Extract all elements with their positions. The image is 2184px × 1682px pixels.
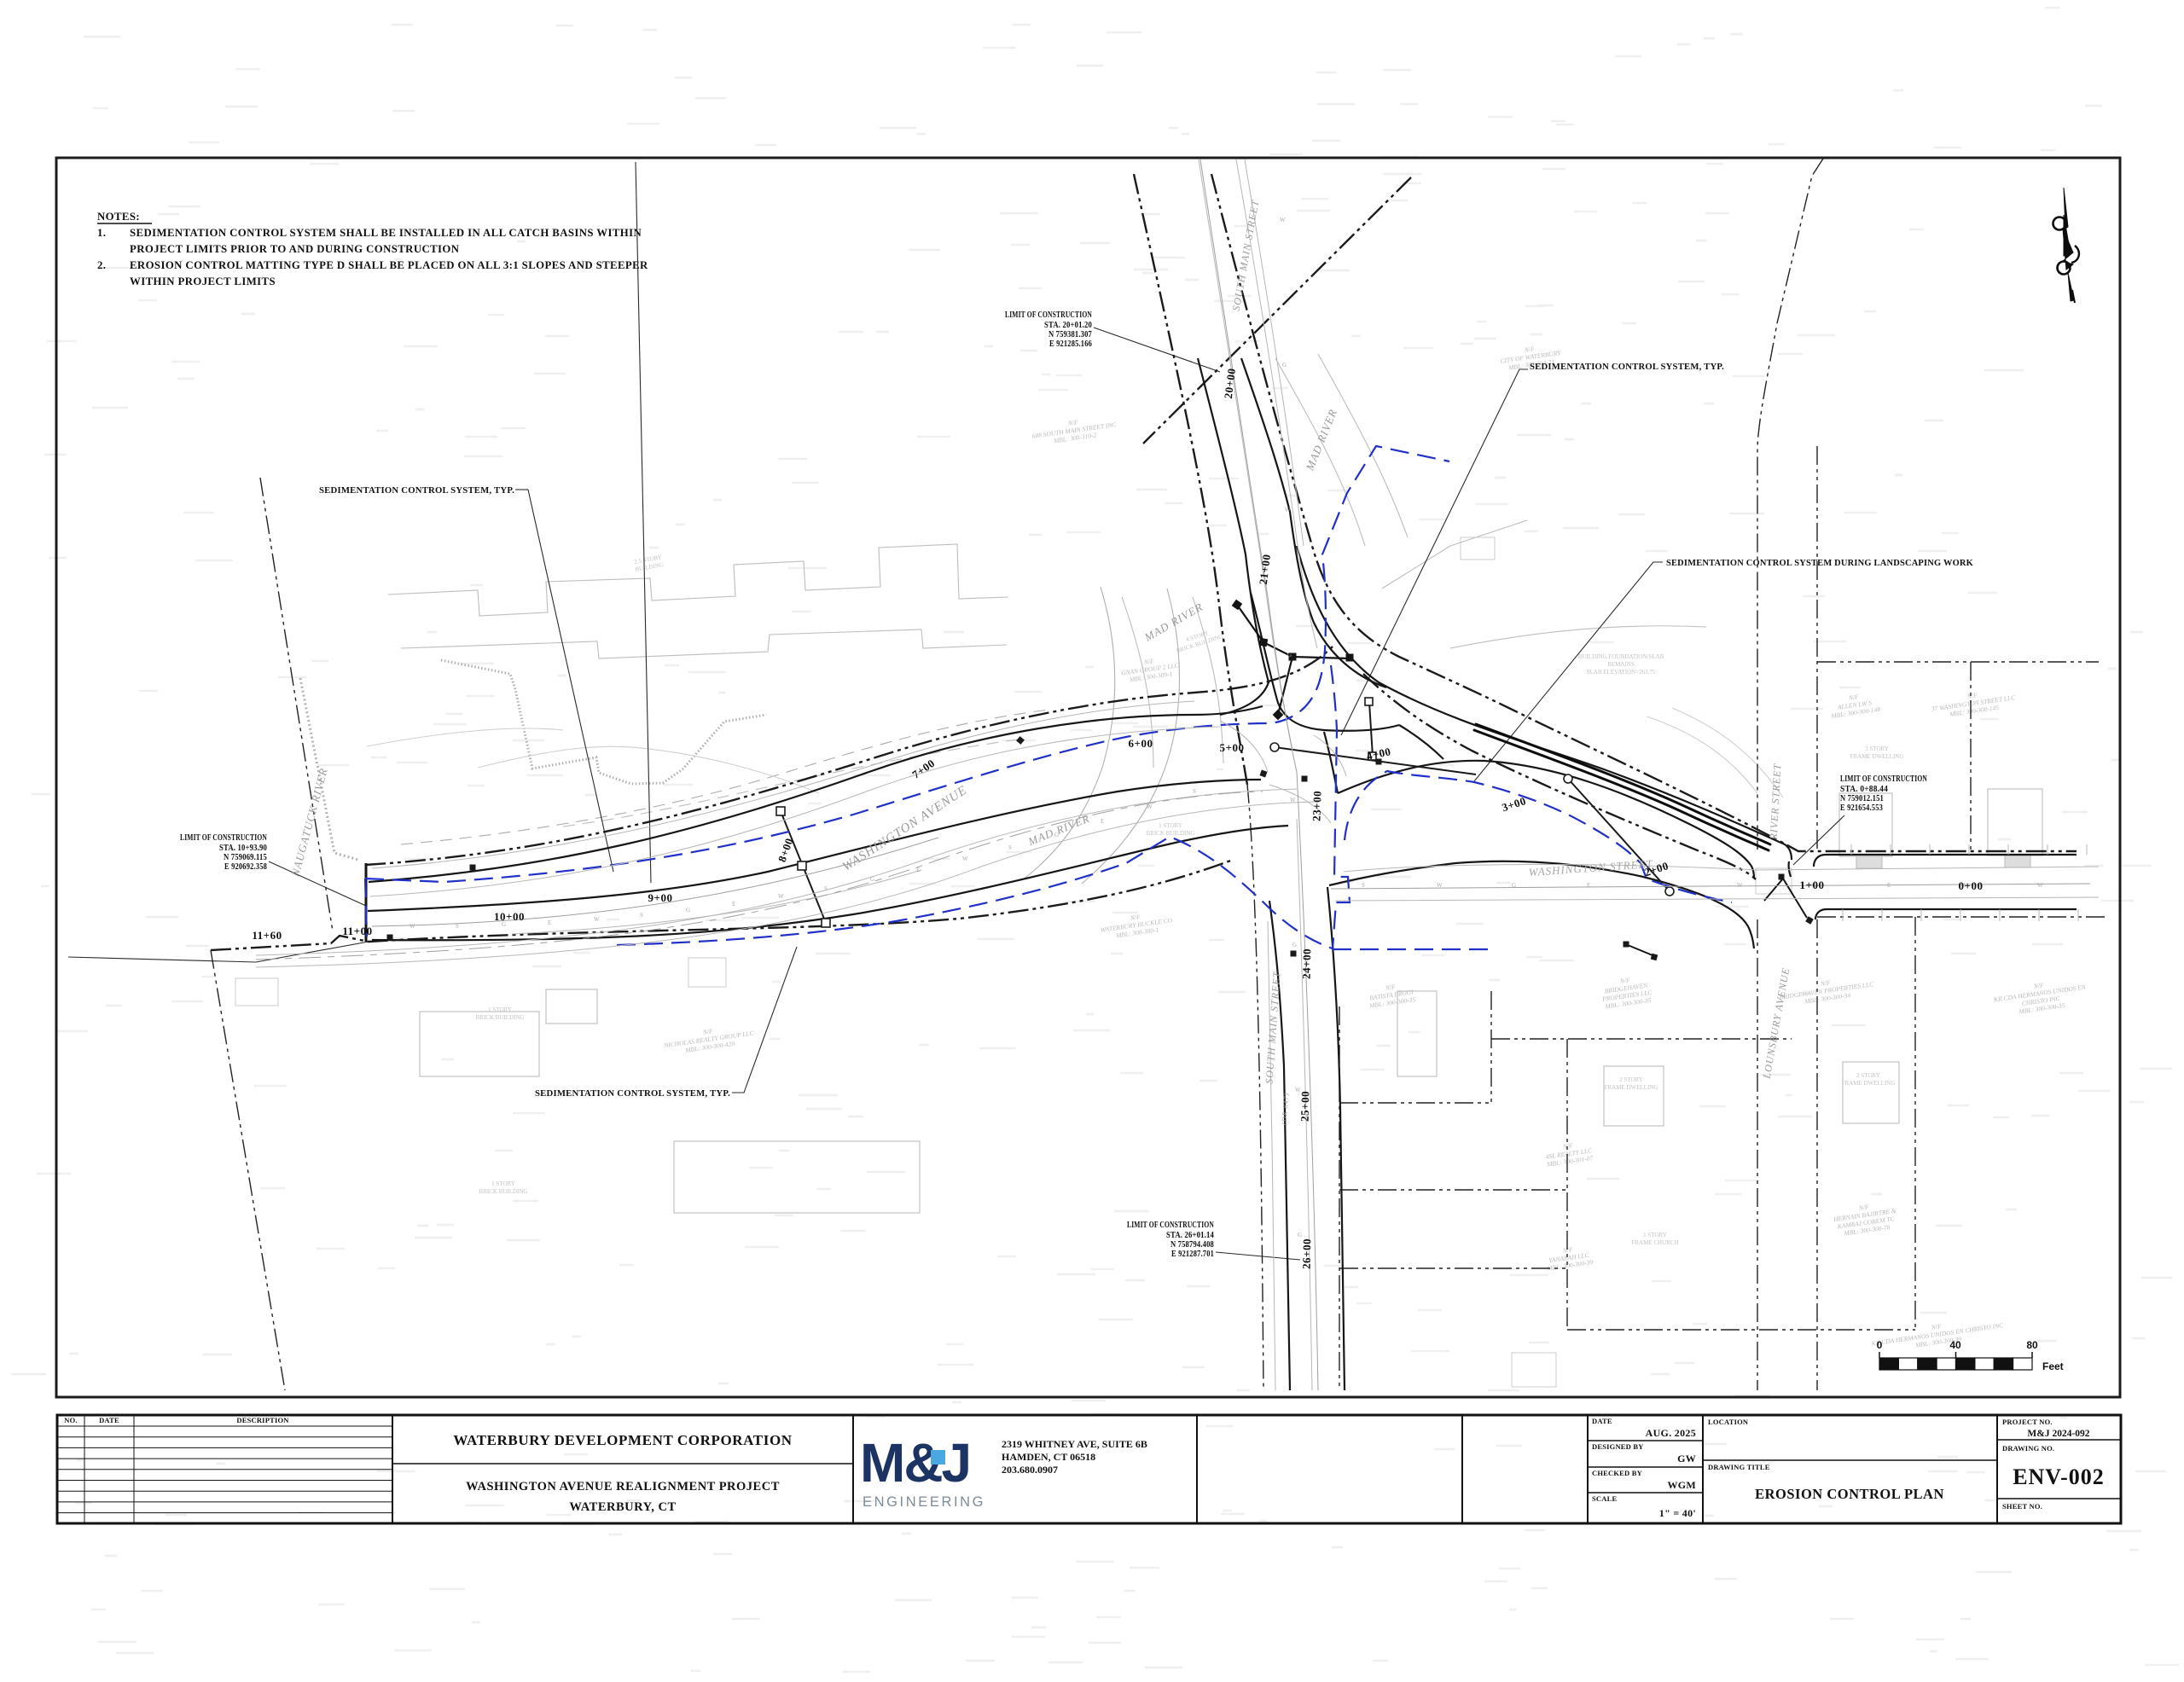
svg-text:LIMIT OF CONSTRUCTION: LIMIT OF CONSTRUCTION	[1127, 1221, 1214, 1230]
svg-text:3 STORY: 3 STORY	[1865, 745, 1889, 752]
svg-text:SEDIMENTATION CONTROL SYSTEM,: SEDIMENTATION CONTROL SYSTEM, TYP.	[319, 485, 514, 496]
svg-text:2319 WHITNEY AVE, SUITE 6B: 2319 WHITNEY AVE, SUITE 6B	[1002, 1438, 1147, 1450]
svg-text:N 758794.408: N 758794.408	[1170, 1240, 1214, 1250]
svg-text:STA. 26+01.14: STA. 26+01.14	[1166, 1231, 1214, 1240]
svg-text:E 921654.553: E 921654.553	[1840, 803, 1883, 813]
svg-text:GW: GW	[1677, 1453, 1696, 1464]
svg-text:PROJECT NO.: PROJECT NO.	[2002, 1418, 2053, 1426]
svg-text:0: 0	[1877, 1339, 1883, 1351]
svg-text:WASHINGTON AVENUE REALIGNMENT: WASHINGTON AVENUE REALIGNMENT PROJECT	[466, 1480, 780, 1493]
svg-text:24+00: 24+00	[1300, 948, 1314, 979]
svg-text:LIMIT OF CONSTRUCTION: LIMIT OF CONSTRUCTION	[1005, 310, 1092, 320]
svg-text:DATE: DATE	[1592, 1417, 1612, 1425]
svg-text:SHEET NO.: SHEET NO.	[2002, 1502, 2042, 1511]
svg-text:1+00: 1+00	[1800, 879, 1825, 891]
svg-text:W: W	[1737, 882, 1743, 889]
svg-text:23+00: 23+00	[1310, 791, 1323, 821]
svg-text:EROSION CONTROL MATTING TYPE D: EROSION CONTROL MATTING TYPE D SHALL BE …	[130, 259, 648, 271]
svg-text:26+00: 26+00	[1300, 1238, 1314, 1269]
svg-text:E: E	[732, 901, 735, 908]
svg-text:G: G	[686, 907, 690, 913]
svg-text:1 STORY: 1 STORY	[1159, 822, 1182, 829]
svg-text:N 759012.151: N 759012.151	[1840, 794, 1884, 803]
svg-text:E: E	[548, 919, 551, 926]
svg-text:E 920692.358: E 920692.358	[224, 862, 267, 872]
svg-text:SEDIMENTATION CONTROL SYSTEM,: SEDIMENTATION CONTROL SYSTEM, TYP.	[535, 1088, 730, 1099]
svg-text:FRAME CHURCH: FRAME CHURCH	[1631, 1239, 1678, 1246]
svg-text:40: 40	[1949, 1339, 1961, 1351]
svg-text:S: S	[1362, 882, 1365, 889]
svg-text:2.: 2.	[97, 259, 106, 271]
svg-text:AUG. 2025: AUG. 2025	[1646, 1427, 1696, 1439]
svg-text:BRICK BUILDING: BRICK BUILDING	[479, 1188, 528, 1195]
svg-text:10+00: 10+00	[494, 910, 525, 923]
svg-text:SCALE: SCALE	[1592, 1494, 1617, 1503]
svg-text:SEDIMENTATION CONTROL SYSTEM D: SEDIMENTATION CONTROL SYSTEM DURING LAND…	[1666, 558, 1973, 568]
svg-text:FRAME DWELLING: FRAME DWELLING	[1842, 1080, 1896, 1087]
svg-text:S: S	[824, 885, 828, 892]
svg-text:W: W	[409, 923, 415, 930]
svg-text:BRICK BUILDING: BRICK BUILDING	[1147, 830, 1195, 837]
svg-text:NO.: NO.	[64, 1416, 77, 1424]
svg-text:W: W	[1280, 217, 1286, 223]
svg-text:SEDIMENTATION CONTROL SYSTEM,: SEDIMENTATION CONTROL SYSTEM, TYP.	[1530, 362, 1724, 372]
svg-text:1 STORY: 1 STORY	[1643, 1232, 1667, 1238]
svg-text:DRAWING TITLE: DRAWING TITLE	[1708, 1463, 1770, 1471]
svg-text:5+00: 5+00	[1220, 741, 1245, 754]
svg-text:S: S	[640, 912, 643, 919]
svg-text:N 759381.307: N 759381.307	[1048, 330, 1092, 339]
svg-text:STA. 10+93.90: STA. 10+93.90	[219, 844, 267, 853]
svg-text:E 921287.701: E 921287.701	[1171, 1250, 1214, 1259]
svg-text:STA. 0+88.44: STA. 0+88.44	[1840, 785, 1888, 794]
svg-text:N 759069.115: N 759069.115	[224, 853, 267, 862]
svg-text:BRICK BUILDING: BRICK BUILDING	[476, 1014, 525, 1021]
svg-text:W: W	[2037, 882, 2043, 889]
svg-text:S: S	[1193, 788, 1196, 795]
svg-text:203.680.0907: 203.680.0907	[1002, 1464, 1058, 1476]
svg-text:STA. 20+01.20: STA. 20+01.20	[1044, 321, 1092, 330]
svg-text:E: E	[1101, 818, 1104, 825]
svg-text:W: W	[1285, 507, 1291, 513]
svg-text:WATERBURY, CT: WATERBURY, CT	[569, 1500, 676, 1514]
svg-text:WATERBURY DEVELOPMENT CORPORAT: WATERBURY DEVELOPMENT CORPORATION	[453, 1432, 792, 1448]
svg-text:G: G	[1292, 942, 1297, 948]
svg-text:25+00: 25+00	[1298, 1091, 1312, 1122]
svg-text:E: E	[1587, 882, 1590, 889]
svg-text:SEDIMENTATION CONTROL SYSTEM S: SEDIMENTATION CONTROL SYSTEM SHALL BE IN…	[130, 227, 642, 239]
svg-text:WGM: WGM	[1667, 1479, 1696, 1491]
svg-text:11+00: 11+00	[342, 925, 372, 937]
svg-text:2 STORY: 2 STORY	[1619, 1076, 1643, 1083]
svg-text:DATE: DATE	[99, 1416, 119, 1424]
svg-text:0+00: 0+00	[1959, 879, 1984, 892]
svg-text:REMAINS: REMAINS	[1607, 661, 1635, 668]
svg-text:G: G	[1282, 362, 1287, 368]
svg-text:WITHIN PROJECT LIMITS: WITHIN PROJECT LIMITS	[130, 275, 276, 287]
svg-text:LIMIT OF CONSTRUCTION: LIMIT OF CONSTRUCTION	[1840, 774, 1927, 784]
svg-text:M&J 2024-092: M&J 2024-092	[2027, 1429, 2089, 1439]
svg-text:6+00: 6+00	[1129, 737, 1153, 750]
svg-text:BUILDING FOUNDATION/SLAB: BUILDING FOUNDATION/SLAB	[1578, 653, 1664, 660]
svg-text:W: W	[1147, 803, 1153, 810]
svg-text:FRAME DWELLING: FRAME DWELLING	[1850, 753, 1904, 760]
svg-text:W: W	[778, 893, 784, 900]
svg-text:ENGINEERING: ENGINEERING	[863, 1494, 985, 1510]
svg-text:W: W	[594, 916, 600, 923]
svg-text:G: G	[1287, 652, 1292, 658]
svg-text:DESCRIPTION: DESCRIPTION	[236, 1416, 289, 1424]
svg-text:DESIGNED BY: DESIGNED BY	[1592, 1442, 1644, 1451]
svg-text:NOTES:: NOTES:	[97, 211, 140, 223]
svg-text:S: S	[1662, 882, 1665, 889]
svg-text:G: G	[1298, 1232, 1302, 1238]
svg-text:W: W	[1290, 797, 1296, 803]
svg-text:Feet: Feet	[2042, 1360, 2064, 1372]
svg-text:9+00: 9+00	[648, 891, 673, 904]
svg-text:CHECKED BY: CHECKED BY	[1592, 1469, 1642, 1477]
svg-text:EROSION CONTROL PLAN: EROSION CONTROL PLAN	[1755, 1486, 1944, 1502]
svg-text:E 921285.166: E 921285.166	[1049, 339, 1092, 349]
svg-text:M&J: M&J	[860, 1432, 970, 1493]
svg-text:S: S	[1008, 844, 1012, 851]
svg-text:HAMDEN, CT 06518: HAMDEN, CT 06518	[1002, 1451, 1095, 1463]
svg-text:SLAB ELEVATION=263.75: SLAB ELEVATION=263.75	[1587, 669, 1656, 676]
svg-text:1 STORY: 1 STORY	[488, 1006, 512, 1013]
svg-text:1.: 1.	[97, 227, 106, 239]
svg-text:1" = 40': 1" = 40'	[1659, 1507, 1696, 1519]
svg-text:LOCATION: LOCATION	[1708, 1418, 1749, 1426]
svg-text:80: 80	[2026, 1339, 2038, 1351]
svg-text:1 STORY: 1 STORY	[491, 1180, 515, 1187]
svg-text:ENV-002: ENV-002	[2013, 1464, 2105, 1489]
svg-text:DRAWING NO.: DRAWING NO.	[2002, 1444, 2054, 1453]
svg-text:LIMIT OF CONSTRUCTION: LIMIT OF CONSTRUCTION	[180, 833, 267, 843]
svg-text:FRAME DWELLING: FRAME DWELLING	[1605, 1084, 1658, 1091]
svg-text:2 STORY: 2 STORY	[1856, 1072, 1880, 1079]
svg-text:W: W	[962, 855, 968, 862]
svg-text:PROJECT LIMITS PRIOR TO AND DU: PROJECT LIMITS PRIOR TO AND DURING CONST…	[130, 243, 460, 255]
svg-text:11+60: 11+60	[252, 929, 282, 942]
svg-text:G: G	[870, 876, 874, 883]
